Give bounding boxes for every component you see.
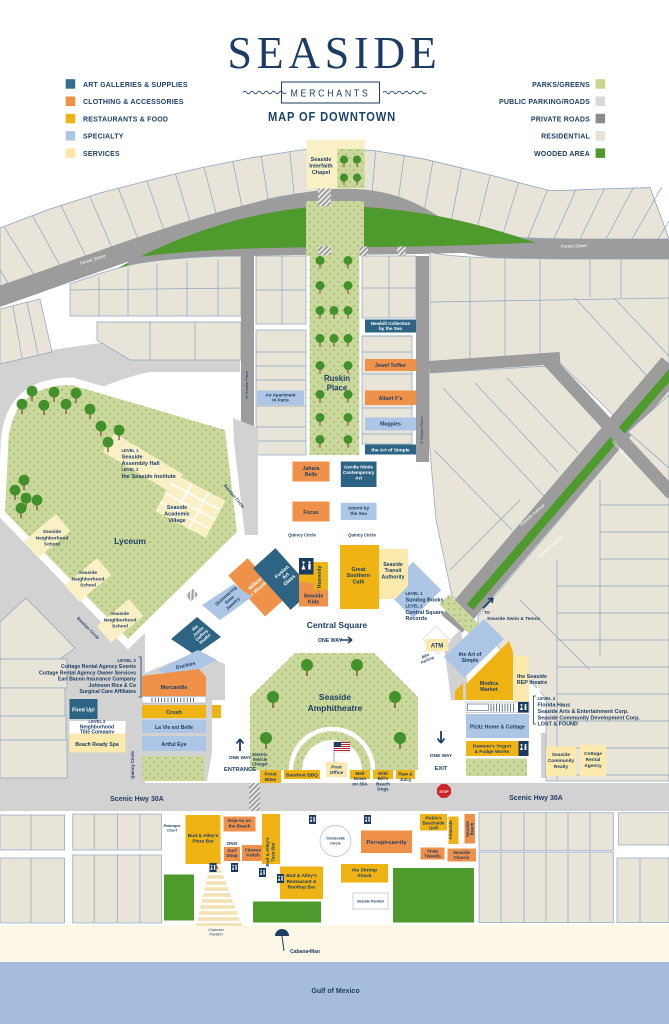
svg-text:Chapel: Chapel: [312, 170, 331, 176]
svg-text:& Fudge Works: & Fudge Works: [474, 749, 509, 755]
svg-text:Kids: Kids: [308, 600, 319, 606]
svg-text:LEVEL 2: LEVEL 2: [406, 604, 424, 609]
svg-text:Realty: Realty: [554, 764, 569, 770]
svg-text:Petanque: Petanque: [163, 824, 180, 828]
svg-text:Amphitheatre: Amphitheatre: [308, 703, 363, 713]
svg-text:ONE WAY: ONE WAY: [318, 638, 343, 644]
svg-text:Shack: Shack: [357, 873, 371, 879]
svg-text:Market: Market: [480, 687, 498, 693]
svg-text:Earl Bacon Insurance Company: Earl Bacon Insurance Company: [58, 677, 136, 683]
svg-text:Forest Street: Forest Street: [561, 243, 588, 249]
svg-text:Quincy Circle: Quincy Circle: [348, 533, 376, 538]
svg-text:Cinderella: Cinderella: [326, 837, 345, 841]
svg-text:E Ruskin Place: E Ruskin Place: [419, 416, 424, 444]
svg-text:PRIVATE ROADS: PRIVATE ROADS: [531, 116, 590, 123]
svg-text:the Beach: the Beach: [229, 823, 251, 828]
svg-text:Juicy: Juicy: [400, 777, 412, 782]
svg-text:Academic: Academic: [164, 511, 189, 517]
svg-text:Records: Records: [406, 616, 428, 622]
svg-text:Assembly Hall: Assembly Hall: [122, 461, 161, 467]
svg-text:Gordie Hinds: Gordie Hinds: [344, 465, 373, 470]
svg-text:Post: Post: [331, 765, 342, 771]
svg-text:Seaside: Seaside: [79, 570, 97, 576]
svg-text:Simple: Simple: [461, 658, 478, 664]
svg-text:Amoré by: Amoré by: [348, 506, 370, 511]
svg-text:School: School: [80, 583, 96, 589]
svg-text:SPECIALTY: SPECIALTY: [83, 134, 124, 141]
svg-text:Agency: Agency: [584, 763, 602, 769]
svg-text:ENTRANCE: ENTRANCE: [224, 767, 256, 773]
svg-text:the Seaside Institute: the Seaside Institute: [122, 474, 176, 480]
svg-text:Transit: Transit: [384, 568, 401, 574]
svg-text:TO: TO: [484, 610, 490, 615]
svg-text:Central Square: Central Square: [307, 620, 368, 630]
svg-text:Per•spi•cas•ity: Per•spi•cas•ity: [366, 840, 407, 846]
svg-text:Taco Bar: Taco Bar: [270, 842, 275, 862]
svg-text:Shop: Shop: [226, 853, 238, 858]
svg-text:ART GALLERIES & SUPPLIES: ART GALLERIES & SUPPLIES: [83, 82, 188, 89]
svg-text:Classic: Classic: [453, 855, 470, 860]
svg-text:Bud & Alley’s: Bud & Alley’s: [265, 837, 270, 867]
svg-text:by the Sea: by the Sea: [379, 326, 402, 331]
svg-text:Neighborhood: Neighborhood: [72, 576, 105, 582]
svg-text:MERCHANTS: MERCHANTS: [291, 89, 371, 100]
svg-text:ATM: ATM: [431, 644, 444, 650]
svg-text:Tweeds: Tweeds: [424, 854, 441, 859]
svg-text:Beach Ready Spa: Beach Ready Spa: [75, 742, 119, 748]
svg-text:Focus: Focus: [303, 510, 318, 516]
svg-text:Village: Village: [168, 518, 185, 524]
svg-text:REP theatre: REP theatre: [517, 680, 547, 686]
svg-text:Dogs: Dogs: [377, 787, 389, 792]
svg-text:Coleman: Coleman: [208, 928, 223, 932]
svg-text:Lyceum: Lyceum: [114, 536, 146, 546]
svg-text:the Sea: the Sea: [350, 511, 367, 516]
svg-text:Cottage Rental Agency Events: Cottage Rental Agency Events: [61, 664, 136, 670]
svg-text:Raw &: Raw &: [398, 772, 413, 777]
svg-text:Restaurant &: Restaurant &: [287, 879, 317, 885]
svg-text:Deja-vu on: Deja-vu on: [228, 818, 252, 823]
svg-text:CLOTHING & ACCESSORIES: CLOTHING & ACCESSORIES: [83, 99, 184, 106]
svg-text:PARKS/GREENS: PARKS/GREENS: [532, 82, 590, 89]
svg-text:LEVEL 2: LEVEL 2: [117, 658, 136, 663]
svg-text:Dawson’s Yogurt: Dawson’s Yogurt: [473, 744, 512, 750]
svg-text:Barefoot BBQ: Barefoot BBQ: [286, 773, 318, 779]
svg-text:Central Square: Central Square: [406, 610, 444, 616]
svg-text:Seaside: Seaside: [383, 562, 403, 568]
svg-text:Bud & Alley’s: Bud & Alley’s: [286, 873, 317, 879]
svg-text:School: School: [44, 542, 60, 548]
svg-text:Fetish: Fetish: [246, 853, 260, 858]
svg-text:Cottage: Cottage: [584, 751, 602, 757]
svg-text:Pizitz Home & Cottage: Pizitz Home & Cottage: [470, 725, 525, 731]
svg-text:Seaside Pavilion: Seaside Pavilion: [357, 900, 384, 904]
svg-text:ONO: ONO: [227, 841, 238, 847]
svg-text:ONE WAY: ONE WAY: [229, 755, 252, 761]
svg-text:Surgical Care Affiliates: Surgical Care Affiliates: [79, 689, 136, 695]
svg-text:Great: Great: [351, 567, 365, 573]
svg-text:on 30A: on 30A: [352, 781, 368, 786]
svg-text:LOST & FOUND: LOST & FOUND: [538, 722, 579, 728]
svg-text:Community: Community: [548, 758, 575, 764]
svg-text:PUBLIC PARKING/ROADS: PUBLIC PARKING/ROADS: [499, 99, 590, 106]
svg-text:Seaside: Seaside: [167, 505, 187, 511]
svg-text:the Shrimp: the Shrimp: [352, 868, 377, 874]
svg-text:WOODED AREA: WOODED AREA: [534, 151, 590, 158]
svg-text:Seaside: Seaside: [43, 529, 61, 535]
svg-text:Seaside: Seaside: [111, 611, 129, 617]
svg-text:SEASIDE: SEASIDE: [228, 27, 442, 78]
svg-text:Seaside Arts & Entertainment C: Seaside Arts & Entertainment Corp.: [538, 709, 630, 715]
svg-text:Interfaith: Interfaith: [309, 164, 333, 170]
svg-text:Bites: Bites: [265, 777, 277, 783]
svg-text:Seaside Community Development: Seaside Community Development Corp.: [538, 715, 641, 721]
svg-text:Seaside: Seaside: [311, 157, 332, 163]
svg-text:Contemporary: Contemporary: [343, 470, 375, 475]
svg-text:Quincy Circle: Quincy Circle: [288, 533, 316, 538]
svg-text:Florida Haus: Florida Haus: [538, 703, 571, 709]
svg-text:Southern: Southern: [347, 573, 371, 579]
svg-text:Gulf of Mexico: Gulf of Mexico: [311, 988, 359, 995]
svg-text:Cottage Rental Agency Owner Se: Cottage Rental Agency Owner Services: [39, 670, 136, 676]
svg-text:RESTAURANTS & FOOD: RESTAURANTS & FOOD: [83, 116, 168, 123]
svg-text:Artful Eye: Artful Eye: [161, 742, 186, 748]
svg-text:Court: Court: [167, 829, 178, 833]
svg-text:ONE WAY: ONE WAY: [430, 753, 453, 759]
svg-text:STOP: STOP: [439, 790, 449, 794]
svg-text:Crush: Crush: [166, 710, 182, 716]
svg-text:School: School: [112, 624, 128, 630]
svg-text:Rental: Rental: [586, 757, 601, 763]
svg-text:Charger: Charger: [252, 762, 268, 767]
svg-text:Beach: Beach: [470, 822, 475, 835]
svg-text:SERVICES: SERVICES: [83, 151, 120, 158]
svg-text:Seaside: Seaside: [122, 455, 143, 461]
svg-text:Frost: Frost: [265, 772, 277, 778]
svg-text:Mercantile: Mercantile: [161, 685, 188, 691]
svg-text:Amavida: Amavida: [448, 820, 453, 840]
svg-text:Authority: Authority: [381, 574, 404, 580]
svg-text:La Vie est Belle: La Vie est Belle: [155, 725, 193, 731]
svg-text:Jewel Toffier: Jewel Toffier: [375, 363, 406, 369]
svg-text:LEVEL 1: LEVEL 1: [406, 591, 424, 596]
svg-text:Grill: Grill: [429, 826, 438, 831]
svg-text:Seaside: Seaside: [319, 692, 351, 702]
svg-text:in Paris: in Paris: [272, 398, 289, 403]
svg-text:EXIT: EXIT: [435, 766, 448, 772]
svg-text:Bud & Alley’s: Bud & Alley’s: [188, 833, 219, 839]
svg-text:Scenic Hwy 30A: Scenic Hwy 30A: [509, 795, 563, 802]
svg-text:Neighborhood: Neighborhood: [104, 617, 137, 623]
svg-text:Johnson Rice & Co: Johnson Rice & Co: [88, 683, 136, 689]
svg-text:Seaside Swim & Tennis: Seaside Swim & Tennis: [487, 616, 541, 622]
svg-text:Heavenly: Heavenly: [317, 566, 323, 589]
svg-text:Office: Office: [330, 770, 344, 776]
svg-text:Café: Café: [353, 579, 365, 585]
svg-text:Neighborhood: Neighborhood: [36, 535, 69, 541]
svg-text:Pizza Bar: Pizza Bar: [192, 839, 213, 845]
svg-text:Rooftop Bar: Rooftop Bar: [288, 885, 316, 891]
svg-text:LEVEL 2: LEVEL 2: [122, 467, 140, 472]
svg-text:RESIDENTIAL: RESIDENTIAL: [541, 134, 590, 141]
svg-text:the Art of Simple: the Art of Simple: [371, 448, 410, 454]
svg-text:Cabana•Man: Cabana•Man: [290, 949, 320, 955]
svg-text:Art: Art: [355, 475, 362, 480]
svg-text:LEVEL 2: LEVEL 2: [538, 696, 556, 701]
svg-text:Seaside: Seaside: [552, 752, 570, 758]
svg-text:Scenic Hwy 30A: Scenic Hwy 30A: [110, 796, 164, 803]
svg-text:Fired Up!: Fired Up!: [72, 708, 95, 714]
svg-text:W Ruskin Place: W Ruskin Place: [244, 370, 249, 399]
svg-text:Belle: Belle: [305, 472, 318, 478]
svg-text:Quincy Circle: Quincy Circle: [130, 751, 135, 779]
svg-text:Circle: Circle: [330, 841, 341, 845]
svg-text:LEVEL 1: LEVEL 1: [122, 448, 140, 453]
svg-text:Pavilion: Pavilion: [209, 933, 222, 937]
svg-text:MAP OF DOWNTOWN: MAP OF DOWNTOWN: [268, 109, 396, 124]
svg-text:Place: Place: [327, 384, 348, 393]
svg-text:Magpies: Magpies: [380, 422, 401, 428]
svg-text:Albert F’s: Albert F’s: [379, 396, 403, 402]
svg-text:Ruskin: Ruskin: [324, 374, 350, 383]
